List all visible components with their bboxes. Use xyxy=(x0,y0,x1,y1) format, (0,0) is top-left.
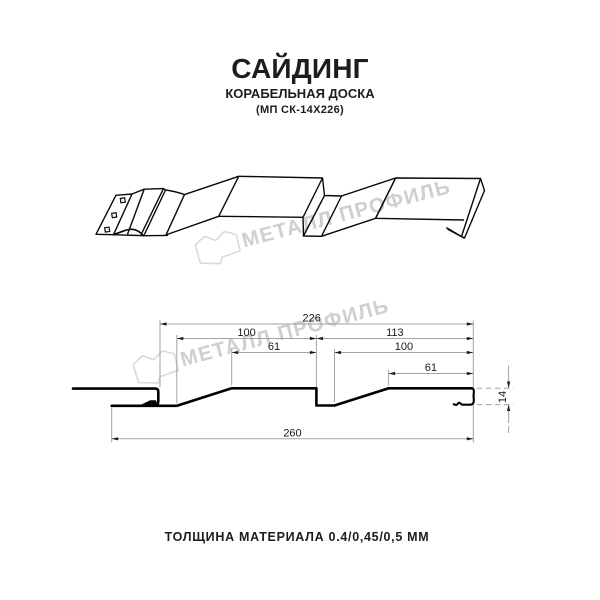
svg-text:100: 100 xyxy=(237,327,255,339)
svg-text:61: 61 xyxy=(268,341,280,353)
svg-text:61: 61 xyxy=(425,362,437,374)
svg-text:113: 113 xyxy=(386,327,404,339)
svg-text:14: 14 xyxy=(497,391,509,403)
svg-text:100: 100 xyxy=(395,341,413,353)
svg-text:МЕТАЛЛ ПРОФИЛЬ: МЕТАЛЛ ПРОФИЛЬ xyxy=(178,294,392,371)
svg-text:226: 226 xyxy=(303,313,321,325)
svg-text:МЕТАЛЛ ПРОФИЛЬ: МЕТАЛЛ ПРОФИЛЬ xyxy=(239,175,453,252)
svg-text:260: 260 xyxy=(283,427,301,439)
